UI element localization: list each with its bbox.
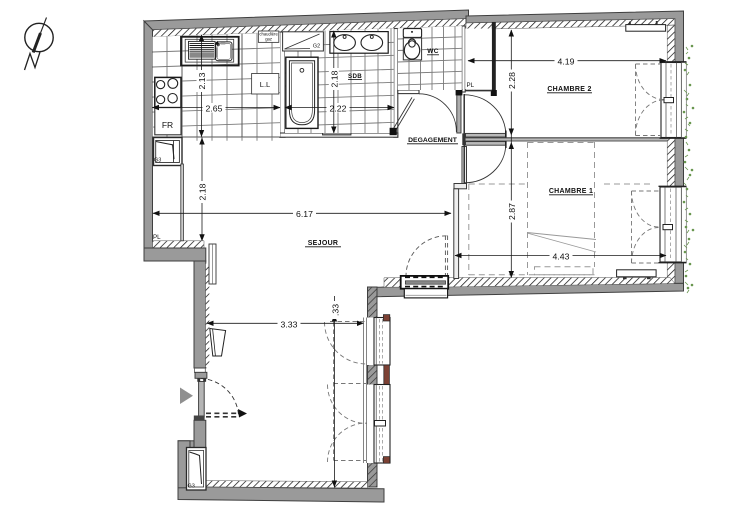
svg-text:2.87: 2.87 [507, 203, 517, 220]
svg-text:2.65: 2.65 [206, 103, 223, 113]
svg-text:PL: PL [153, 234, 161, 241]
svg-text:2.22: 2.22 [330, 103, 347, 113]
svg-text:FR: FR [162, 120, 173, 130]
svg-text:WC: WC [427, 48, 438, 55]
svg-text:.33: .33 [330, 304, 340, 316]
svg-text:SEJOUR: SEJOUR [308, 240, 339, 247]
svg-text:CHAMBRE 1: CHAMBRE 1 [549, 188, 593, 195]
svg-text:3.33: 3.33 [281, 319, 298, 329]
svg-text:DEGAGEMENT: DEGAGEMENT [408, 137, 458, 144]
svg-text:6.17: 6.17 [296, 209, 313, 219]
svg-text:G3: G3 [188, 484, 195, 490]
svg-text:4.19: 4.19 [558, 56, 575, 66]
svg-text:G2: G2 [313, 44, 320, 50]
svg-text:G3: G3 [154, 158, 161, 164]
svg-text:2.18: 2.18 [329, 70, 339, 87]
svg-text:2.18: 2.18 [198, 183, 208, 200]
svg-text:L.L: L.L [260, 80, 270, 89]
svg-text:2.28: 2.28 [507, 72, 517, 89]
svg-text:gaz: gaz [265, 37, 272, 42]
svg-text:CHAMBRE 2: CHAMBRE 2 [547, 86, 591, 93]
svg-text:SDB: SDB [348, 73, 362, 80]
svg-text:PL: PL [467, 82, 475, 89]
svg-text:4.43: 4.43 [553, 251, 570, 261]
svg-text:2.13: 2.13 [197, 72, 207, 89]
